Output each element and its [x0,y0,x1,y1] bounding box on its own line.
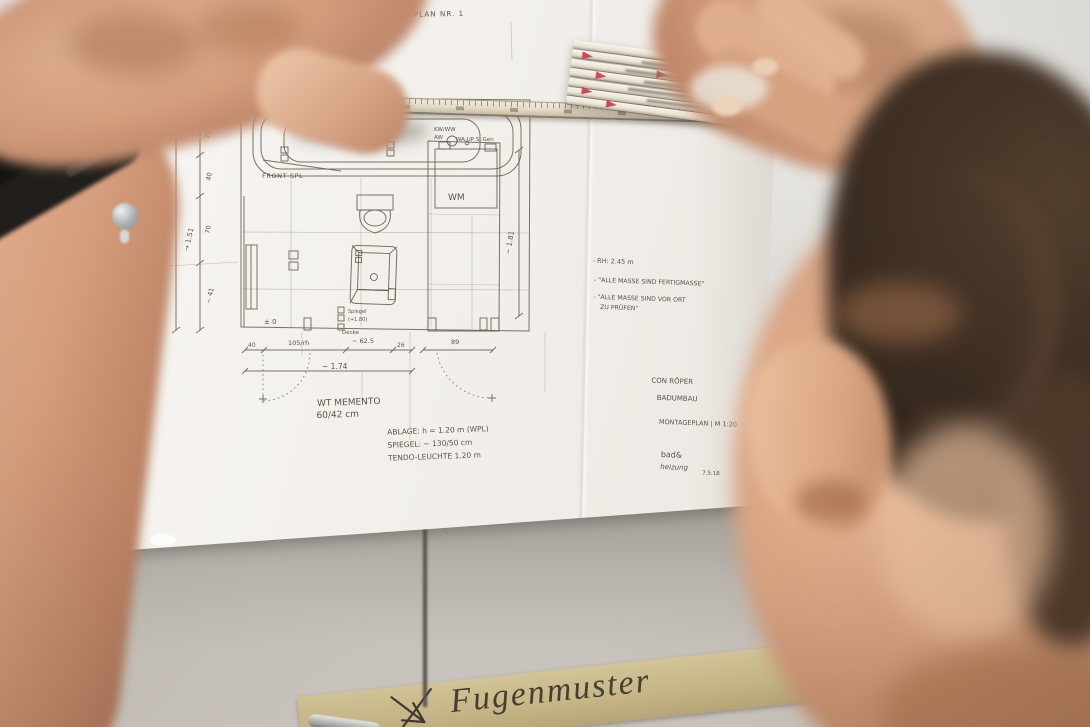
plan-type-scale: MONTAGEPLAN | M 1:20 [659,418,737,429]
decke-label: Decke [342,330,360,336]
dim-625-label: ~ 62.5 [352,337,374,345]
wt-memento-label: WT MEMENTO [317,397,381,409]
ablage-note: ABLAGE: h = 1.20 m (WPL) [387,424,489,437]
washbasin [350,245,397,305]
dim-40v-label: 40 [204,172,214,182]
dim-174-label: ~ 1.74 [322,362,348,371]
wt-size-label: 60/42 cm [316,410,359,421]
left-hand-knuckle-shading [195,2,300,54]
nostril-shadow [795,480,867,522]
project-name: BADUMBAU [657,394,698,403]
spiegel-small2-label: (+1.80) [348,317,367,323]
dim-40b-label: 40 [248,342,256,349]
note-rh: - RH: 2.45 m [593,257,634,266]
radiator [246,245,257,309]
zero-level-label: ± 0 [264,318,277,326]
dim-bottom: 40 105/rh ~ 62.5 26 89 ~ 1.74 [242,332,545,440]
dim-89-label: 89 [451,338,459,346]
fingernail [712,96,742,116]
mirror-squares [289,251,298,270]
metal-pen-tip [308,713,381,727]
firm-name: CON RÖPER [651,376,693,386]
front-spl-label: FRONT SPL [262,172,303,180]
kw-ww-label: KW/WW [434,127,456,133]
note-fertigmasse: - "ALLE MASSE SIND FERTIGMASSE" [594,277,705,288]
spiegel-small-label: Spiegel [348,309,366,315]
note-pruefen-1: - "ALLE MASSE SIND VOR ORT [593,294,686,304]
dim-105-label: 105/rh [288,339,309,347]
tendo-note: TENDO-LEUCHTE 1.20 m [387,450,481,462]
general-notes: - RH: 2.45 m - "ALLE MASSE SIND FERTIGMA… [591,257,705,315]
photo-bathroom-plan-scene: Fugenmuster [0,0,1090,727]
logo-date: 7.5.18 [702,470,720,477]
logo-line2: heizung [660,463,688,472]
left-hand-knuckle-shading [70,12,200,76]
watch-buckle [112,203,138,229]
toilet [357,195,393,233]
arrow-sketch-icon [385,684,447,727]
dim-70-label: 70 [203,225,213,235]
brow-shadow [836,282,961,344]
aw-label: AW [434,135,443,141]
wm-label: WM [448,193,465,203]
legend-boxes [338,307,344,330]
spiegel-note: SPIEGEL: ~ 130/50 cm [387,438,472,450]
fixture-notes: WT MEMENTO 60/42 cm ABLAGE: h = 1.20 m (… [316,393,490,465]
title-block: CON RÖPER BADUMBAU MONTAGEPLAN | M 1:20 … [648,376,739,478]
dim-26-label: 26 [397,342,405,349]
fingernail [752,58,778,76]
dim-41-label: ~ 41 [204,287,215,304]
note-pruefen-2: ZU PRÜFEN" [600,302,639,312]
watch-buckle-pin [120,230,129,243]
wa-up-label: WA-UP Si.Gen [456,137,494,143]
logo-line1: bad& [661,450,683,460]
cheek-highlight [878,425,1053,640]
dim-181-label: ~ 1.81 [504,230,516,255]
